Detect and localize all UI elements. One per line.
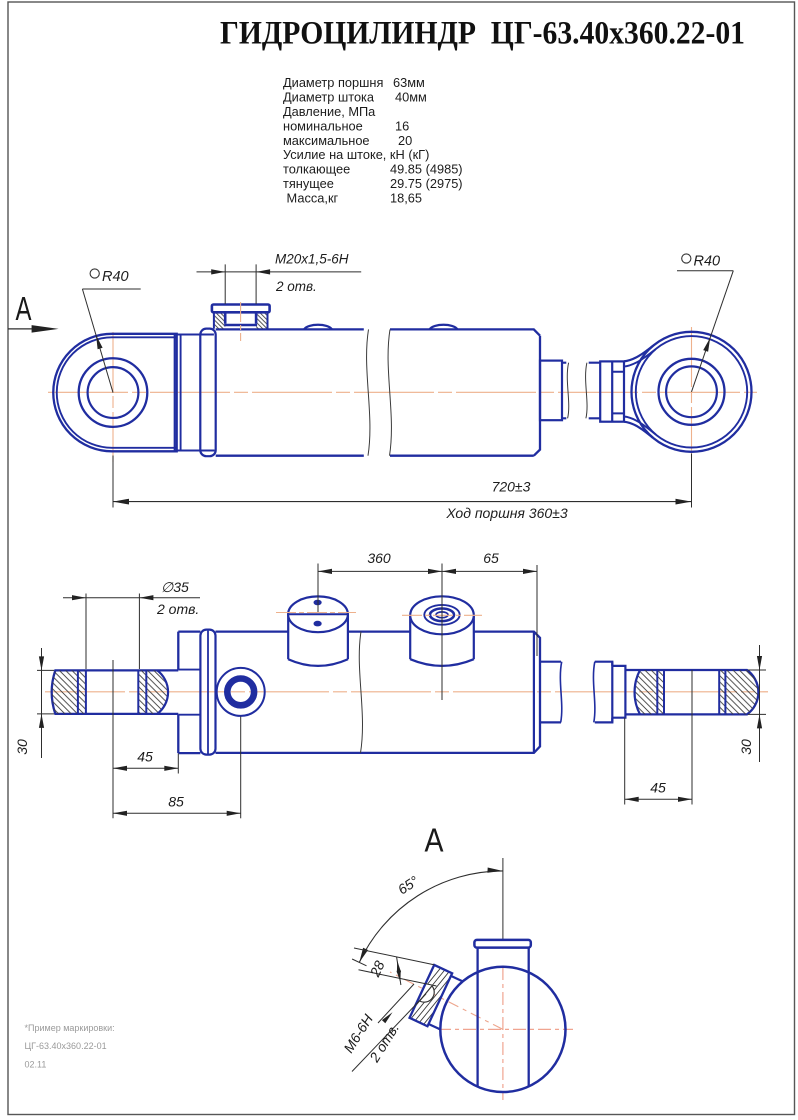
svg-text:40мм: 40мм <box>395 90 427 105</box>
svg-text:R40: R40 <box>694 254 721 270</box>
svg-text:02.11: 02.11 <box>25 1060 47 1070</box>
svg-text:∅35: ∅35 <box>161 579 189 595</box>
svg-text:45: 45 <box>650 780 666 796</box>
svg-text:Усилие на штоке, кН (кГ): Усилие на штоке, кН (кГ) <box>283 147 429 162</box>
svg-text:2 отв.: 2 отв. <box>275 279 317 294</box>
svg-text:49.85 (4985): 49.85 (4985) <box>390 162 463 177</box>
svg-text:65: 65 <box>483 550 499 566</box>
svg-text:Диаметр штока: Диаметр штока <box>283 90 375 105</box>
svg-text:толкающее: толкающее <box>283 162 350 177</box>
svg-text:28: 28 <box>366 958 388 980</box>
svg-text:Давление, МПа: Давление, МПа <box>283 104 376 119</box>
svg-text:ГИДРОЦИЛИНДР ЦГ-63.40х360.22-: ГИДРОЦИЛИНДР ЦГ-63.40х360.22-01 <box>220 16 745 52</box>
svg-text:Масса,кг: Масса,кг <box>283 191 339 206</box>
svg-text:А: А <box>16 290 32 327</box>
svg-text:М20х1,5-6Н: М20х1,5-6Н <box>275 252 349 267</box>
svg-text:20: 20 <box>398 133 412 148</box>
svg-text:18,65: 18,65 <box>390 191 422 206</box>
svg-text:30: 30 <box>14 739 30 755</box>
svg-text:360: 360 <box>367 550 391 566</box>
svg-text:2 отв.: 2 отв. <box>156 601 199 617</box>
svg-text:63мм: 63мм <box>393 75 425 90</box>
svg-text:R40: R40 <box>102 269 129 285</box>
svg-text:ЦГ-63.40х360.22-01: ЦГ-63.40х360.22-01 <box>25 1041 107 1051</box>
svg-text:16: 16 <box>395 118 409 133</box>
svg-text:29.75 (2975): 29.75 (2975) <box>390 176 463 191</box>
svg-text:Диаметр поршня: Диаметр поршня <box>283 75 383 90</box>
svg-text:номинальное: номинальное <box>283 118 363 133</box>
svg-text:720±3: 720±3 <box>492 479 531 495</box>
svg-text:30: 30 <box>738 739 754 755</box>
svg-text:максимальное: максимальное <box>283 133 370 148</box>
svg-text:Ход поршня 360±3: Ход поршня 360±3 <box>445 505 567 521</box>
svg-text:тянущее: тянущее <box>283 176 334 191</box>
svg-text:85: 85 <box>168 794 184 810</box>
svg-text:45: 45 <box>137 749 153 765</box>
svg-text:*Пример маркировки:: *Пример маркировки: <box>25 1023 115 1033</box>
svg-text:65°: 65° <box>395 872 422 897</box>
svg-text:А: А <box>425 822 444 859</box>
